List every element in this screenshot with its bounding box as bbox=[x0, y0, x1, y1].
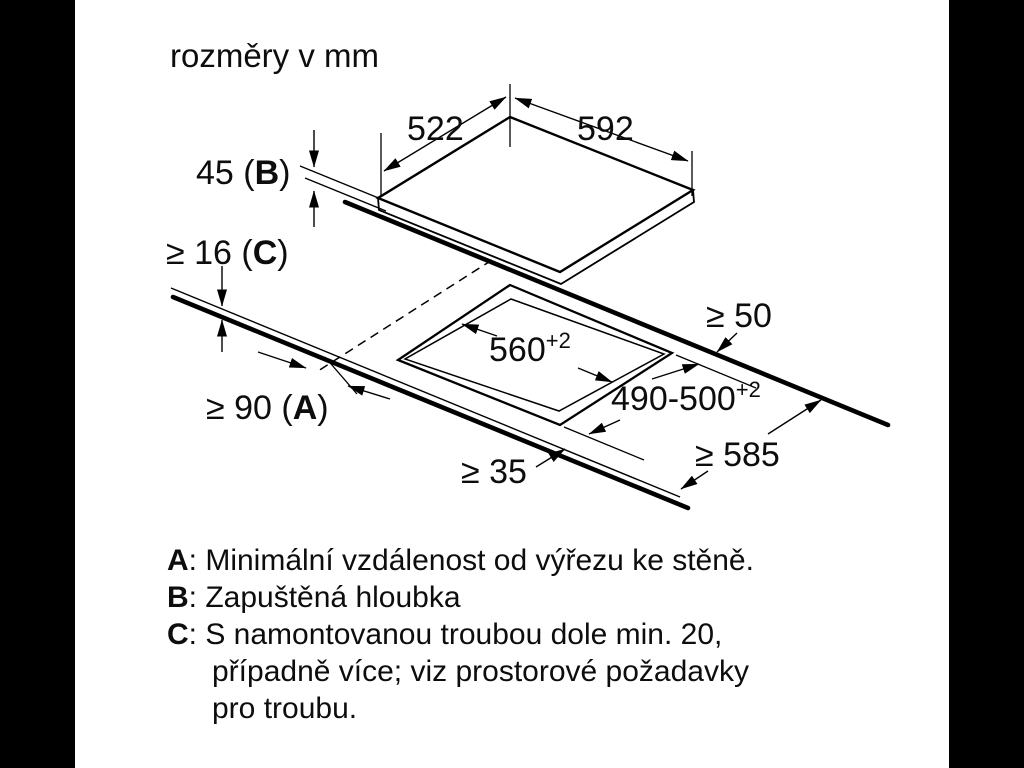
label-top-width: 592 bbox=[577, 110, 634, 148]
installation-diagram-page: rozměry v mm bbox=[0, 0, 1024, 768]
legend-row-c: C: S namontovanou troubou dole min. 20, bbox=[167, 618, 722, 651]
label-worktop-thickness: ≥ 16 (C) bbox=[166, 234, 289, 272]
label-rear-clearance: ≥ 50 bbox=[706, 297, 772, 335]
legend-text-a: : Minimální vzdálenost od výřezu ke stěn… bbox=[189, 544, 754, 577]
letterbox-left bbox=[0, 0, 75, 768]
diagram-background bbox=[0, 0, 1024, 768]
label-recess-prefix: 45 ( bbox=[196, 154, 255, 192]
legend-row-c-cont1: případně více; viz prostorové požadavky bbox=[212, 655, 749, 688]
cooktop-installation-diagram: rozměry v mm bbox=[0, 0, 1024, 768]
label-front-clearance: ≥ 35 bbox=[461, 453, 527, 491]
legend-letter-a: A bbox=[167, 544, 189, 577]
legend-row-c-cont2: pro troubu. bbox=[212, 692, 357, 725]
page-title: rozměry v mm bbox=[170, 37, 379, 74]
label-recess-suffix: ) bbox=[279, 154, 290, 192]
label-side-prefix: ≥ 90 ( bbox=[206, 389, 293, 427]
legend-letter-c: C bbox=[167, 618, 189, 651]
letterbox-right bbox=[949, 0, 1024, 768]
legend-row-b: B: Zapuštěná hloubka bbox=[167, 581, 461, 614]
label-cutout-depth-value: 490-500 bbox=[611, 380, 736, 418]
legend-text-c: : S namontovanou troubou dole min. 20, bbox=[189, 618, 723, 651]
legend-row-a: A: Minimální vzdálenost od výřezu ke stě… bbox=[167, 544, 754, 577]
legend-letter-b: B bbox=[167, 581, 189, 614]
legend-text-b: : Zapuštěná hloubka bbox=[189, 581, 461, 614]
label-cutout-width-value: 560 bbox=[489, 331, 546, 369]
label-recess-letter: B bbox=[255, 154, 280, 192]
label-cutout-width-tolerance: +2 bbox=[546, 328, 571, 353]
label-side-suffix: ) bbox=[317, 389, 328, 427]
label-recess-depth: 45 (B) bbox=[196, 154, 290, 192]
label-thickness-letter: C bbox=[253, 234, 278, 272]
label-side-clearance: ≥ 90 (A) bbox=[206, 389, 329, 427]
label-side-letter: A bbox=[293, 389, 318, 427]
label-cutout-depth-tolerance: +2 bbox=[736, 377, 761, 402]
label-thickness-suffix: ) bbox=[277, 234, 288, 272]
label-worktop-depth: ≥ 585 bbox=[695, 436, 780, 474]
label-thickness-prefix: ≥ 16 ( bbox=[166, 234, 253, 272]
label-top-depth: 522 bbox=[407, 110, 464, 148]
